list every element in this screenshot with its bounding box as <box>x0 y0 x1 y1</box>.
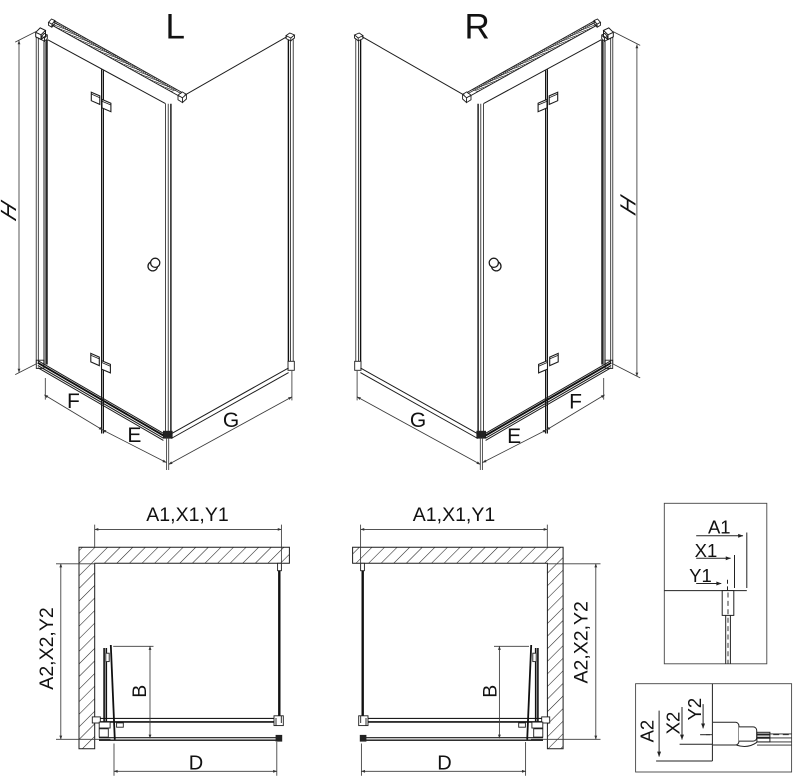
svg-text:A1: A1 <box>708 516 731 537</box>
svg-text:Y2: Y2 <box>684 698 705 721</box>
svg-text:F: F <box>569 391 582 414</box>
svg-text:A2: A2 <box>637 720 658 743</box>
svg-text:B: B <box>129 685 151 698</box>
svg-text:L: L <box>166 8 185 47</box>
svg-text:R: R <box>465 8 490 47</box>
svg-text:G: G <box>223 409 239 432</box>
svg-text:E: E <box>507 425 521 448</box>
svg-text:H: H <box>0 195 21 226</box>
svg-text:F: F <box>67 390 80 413</box>
svg-text:A1,X1,Y1: A1,X1,Y1 <box>146 504 228 526</box>
svg-text:Y1: Y1 <box>689 565 712 586</box>
svg-text:E: E <box>127 424 141 447</box>
svg-text:A1,X1,Y1: A1,X1,Y1 <box>413 504 495 526</box>
svg-text:X2: X2 <box>663 712 684 735</box>
svg-text:D: D <box>437 753 451 775</box>
svg-text:A2,X2,Y2: A2,X2,Y2 <box>571 601 593 683</box>
svg-text:A2,X2,Y2: A2,X2,Y2 <box>36 607 58 689</box>
svg-text:G: G <box>410 409 426 432</box>
svg-text:X1: X1 <box>695 540 718 561</box>
svg-text:D: D <box>189 753 203 775</box>
svg-text:B: B <box>480 685 502 698</box>
